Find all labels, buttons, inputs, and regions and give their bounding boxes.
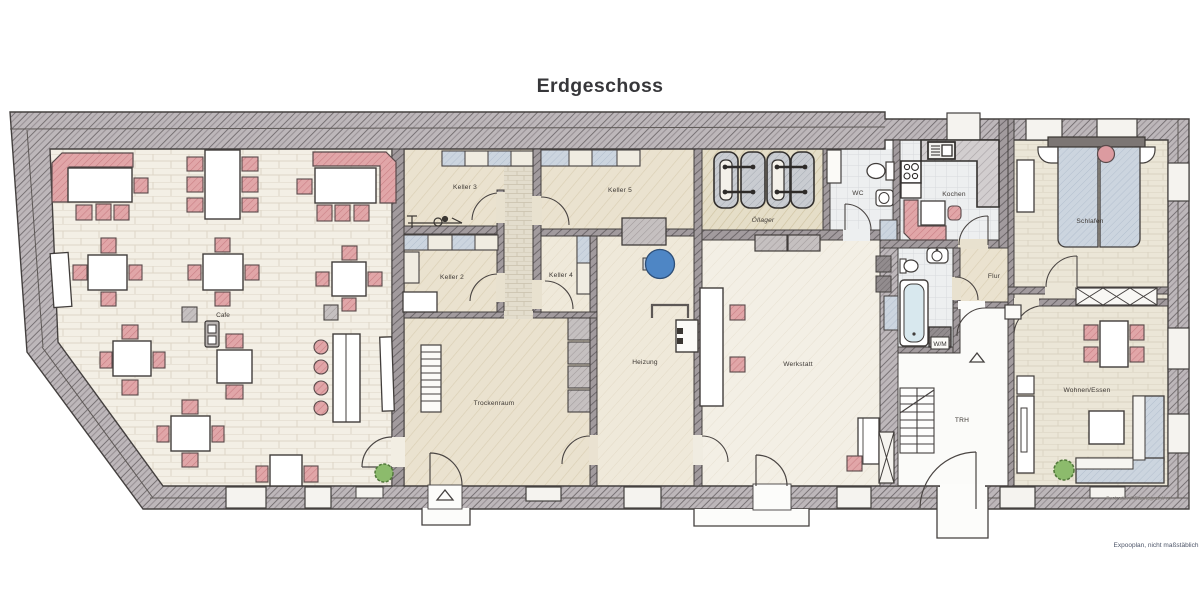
- svg-text:Schlafen: Schlafen: [1076, 218, 1103, 225]
- svg-text:WC: WC: [852, 190, 863, 197]
- svg-text:Keller 2: Keller 2: [440, 274, 464, 281]
- svg-text:Cafe: Cafe: [216, 312, 230, 319]
- svg-text:Erdgeschoss: Erdgeschoss: [537, 75, 664, 97]
- svg-text:Keller 3: Keller 3: [453, 184, 477, 191]
- svg-text:Öllager: Öllager: [752, 216, 775, 224]
- svg-text:Keller 5: Keller 5: [608, 187, 632, 194]
- svg-text:W/M: W/M: [933, 341, 946, 348]
- svg-text:Trockenraum: Trockenraum: [474, 400, 515, 407]
- svg-text:Keller 4: Keller 4: [549, 272, 573, 279]
- svg-text:Heizung: Heizung: [632, 359, 658, 366]
- svg-text:Flur: Flur: [988, 273, 1001, 280]
- svg-text:Wohnen/Essen: Wohnen/Essen: [1064, 387, 1111, 394]
- svg-text:Expooplan, nicht maßstäblich: Expooplan, nicht maßstäblich: [1114, 542, 1199, 549]
- svg-text:TRH: TRH: [955, 417, 969, 424]
- svg-text:Werkstatt: Werkstatt: [783, 361, 813, 368]
- svg-text:Kochen: Kochen: [942, 191, 966, 198]
- svg-text:illustration©Dannegret·k·m: illustration©Dannegret·k·m: [1105, 495, 1171, 502]
